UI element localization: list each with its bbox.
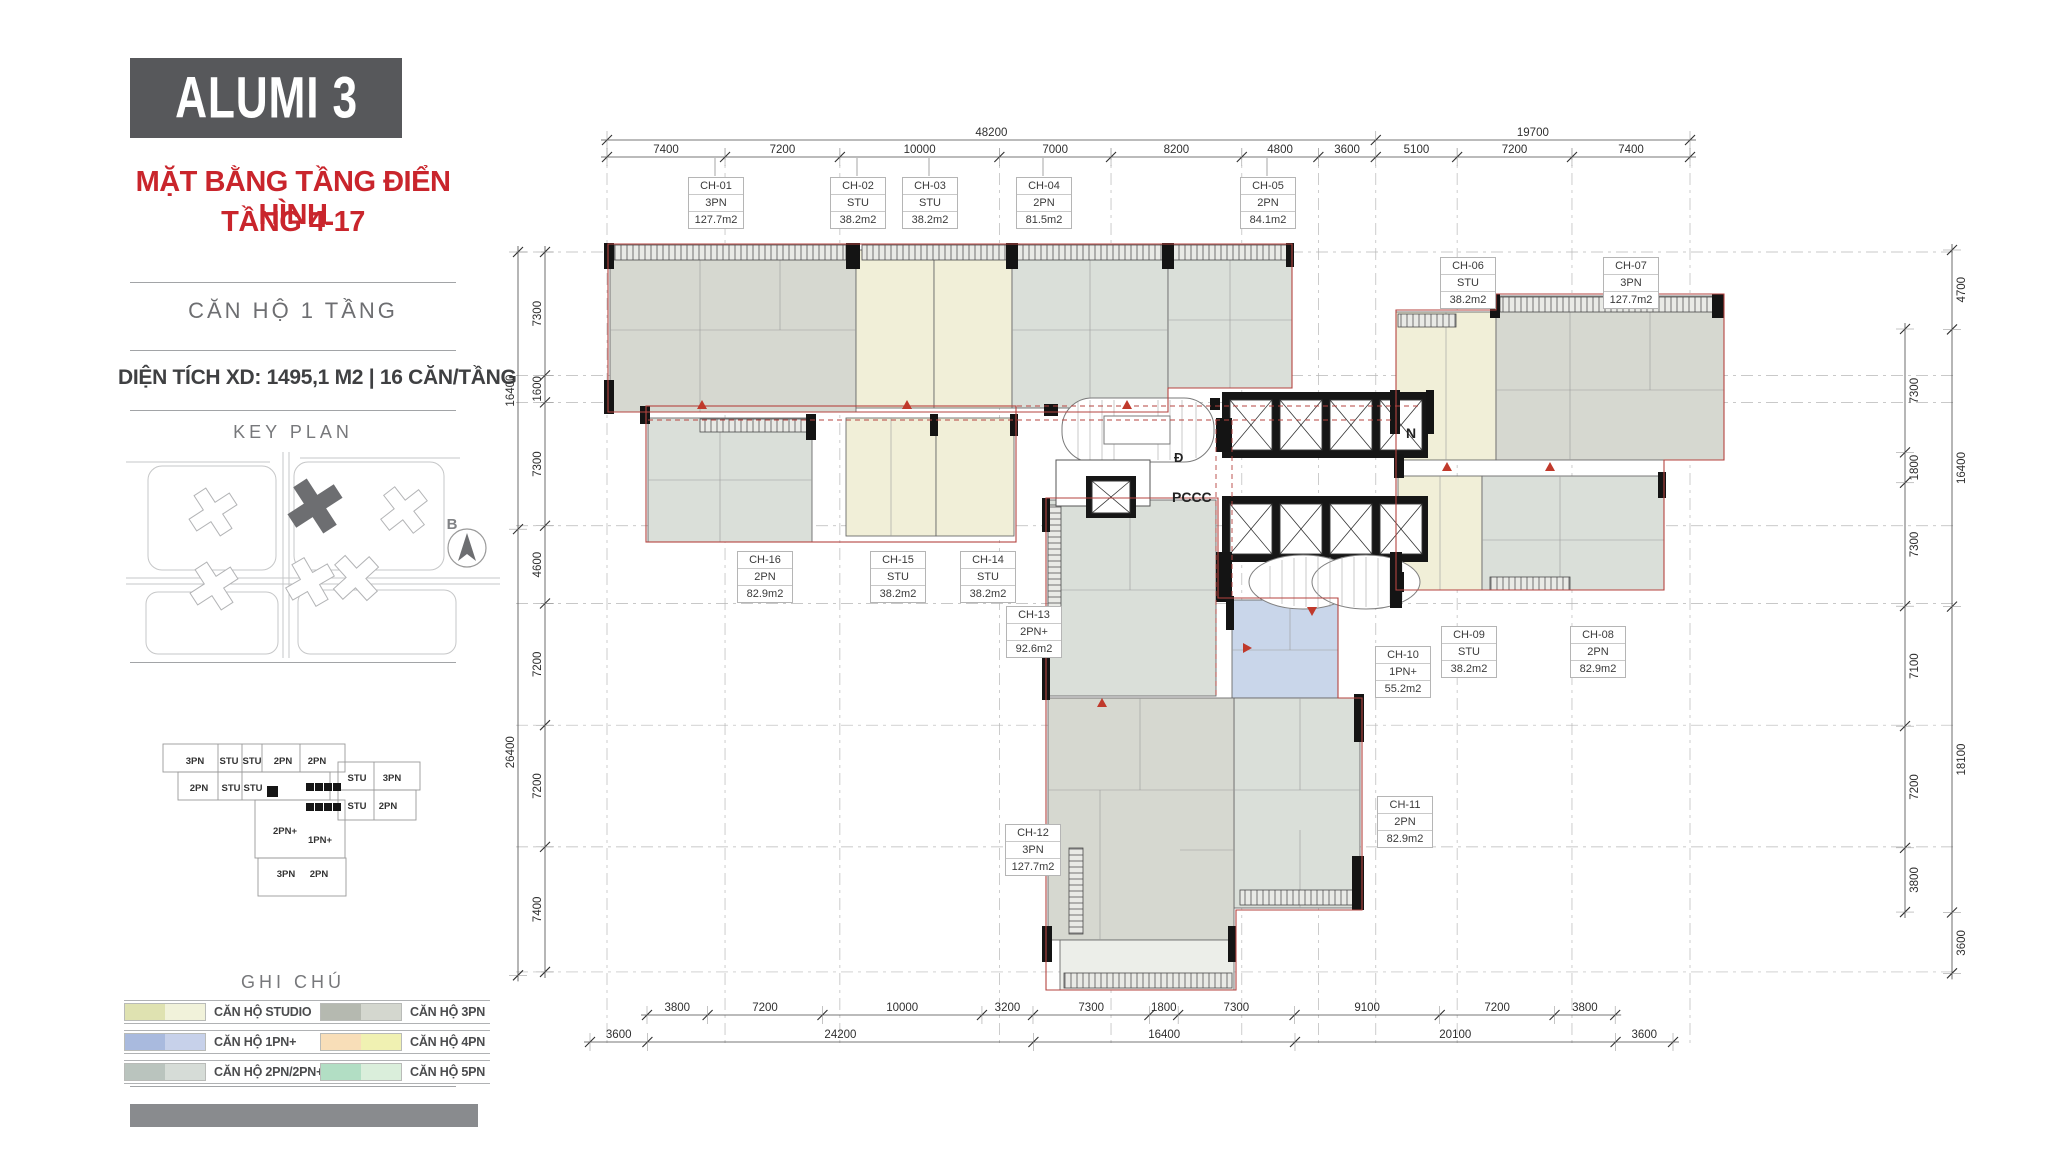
dim-label: 3200 <box>995 1002 1021 1014</box>
unit-label-ch-07: CH-073PN127.7m2 <box>1603 257 1659 309</box>
dim-label: 3800 <box>1909 867 1921 893</box>
unit-area: 82.9m2 <box>1378 830 1432 847</box>
unit-type: 1PN+ <box>1376 663 1430 680</box>
unit-label-ch-14: CH-14STU38.2m2 <box>960 551 1016 603</box>
unit-label-ch-11: CH-112PN82.9m2 <box>1377 796 1433 848</box>
dim-label: 4800 <box>1267 144 1293 156</box>
dim-label: 7100 <box>1909 653 1921 679</box>
unit-label-ch-12: CH-123PN127.7m2 <box>1005 824 1061 876</box>
unit-type: 3PN <box>1006 841 1060 858</box>
unit-type: 2PN <box>1017 194 1071 211</box>
dim-label: 7200 <box>1484 1002 1510 1014</box>
unit-area: 127.7m2 <box>689 211 743 228</box>
dim-label: 7400 <box>653 144 679 156</box>
dim-label: 3600 <box>1631 1029 1657 1041</box>
unit-id: CH-11 <box>1378 797 1432 813</box>
dim-right-outer: 470016400181003600 <box>1943 244 1968 979</box>
unit-type: 3PN <box>1604 274 1658 291</box>
dim-label: 7200 <box>1502 144 1528 156</box>
dim-bottom-segments: 3800720010000320073001800730091007200380… <box>641 1002 1621 1024</box>
unit-type: 2PN <box>738 568 792 585</box>
dim-label: 7000 <box>1042 144 1068 156</box>
unit-type: 2PN <box>1241 194 1295 211</box>
dim-label: 7300 <box>1909 378 1921 404</box>
unit-type: 3PN <box>689 194 743 211</box>
dim-top-overall: 4820019700 <box>601 127 1696 149</box>
dim-label: 3600 <box>1956 930 1968 956</box>
dim-left-outer: 1640026400 <box>505 246 527 981</box>
dim-label: 7200 <box>752 1002 778 1014</box>
unit-label-ch-03: CH-03STU38.2m2 <box>902 177 958 229</box>
unit-type: STU <box>1442 643 1496 660</box>
dim-label: 16400 <box>1956 452 1968 484</box>
unit-id: CH-05 <box>1241 178 1295 194</box>
unit-label-ch-10: CH-101PN+55.2m2 <box>1375 646 1431 698</box>
unit-type: STU <box>831 194 885 211</box>
unit-area: 38.2m2 <box>961 585 1015 602</box>
dim-label: 3600 <box>606 1029 632 1041</box>
dim-label: 7200 <box>1909 774 1921 800</box>
apartment-blocks <box>610 250 1724 990</box>
unit-id: CH-12 <box>1006 825 1060 841</box>
unit-area: 127.7m2 <box>1604 291 1658 308</box>
unit-area-ch-08 <box>1482 476 1664 590</box>
unit-area-ch-02 <box>856 250 934 408</box>
dim-label: 1800 <box>1151 1002 1177 1014</box>
dim-label: 20100 <box>1439 1029 1471 1041</box>
dim-label: 3800 <box>1572 1002 1598 1014</box>
unit-label-ch-04: CH-042PN81.5m2 <box>1016 177 1072 229</box>
dim-label: 7200 <box>770 144 796 156</box>
unit-area: 38.2m2 <box>871 585 925 602</box>
dim-label: 1600 <box>532 376 544 402</box>
unit-label-ch-09: CH-09STU38.2m2 <box>1441 626 1497 678</box>
dim-label: 7300 <box>1078 1002 1104 1014</box>
unit-label-ch-16: CH-162PN82.9m2 <box>737 551 793 603</box>
unit-label-ch-13: CH-132PN+92.6m2 <box>1006 606 1062 658</box>
unit-id: CH-04 <box>1017 178 1071 194</box>
unit-label-ch-08: CH-082PN82.9m2 <box>1570 626 1626 678</box>
unit-id: CH-03 <box>903 178 957 194</box>
page: ALUMI 3 MẶT BẰNG TẦNG ĐIỂN HÌNH TẦNG 4-1… <box>0 0 2048 1152</box>
unit-type: 2PN <box>1378 813 1432 830</box>
dim-label: 7300 <box>1909 532 1921 558</box>
unit-area: 82.9m2 <box>1571 660 1625 677</box>
unit-area: 38.2m2 <box>831 211 885 228</box>
dim-label: 24200 <box>824 1029 856 1041</box>
unit-id: CH-07 <box>1604 258 1658 274</box>
unit-type: STU <box>1441 274 1495 291</box>
unit-area-ch-13 <box>1048 500 1216 696</box>
d-label: Đ <box>1174 450 1183 465</box>
pccc-label: PCCC <box>1172 489 1212 505</box>
unit-id: CH-08 <box>1571 627 1625 643</box>
dim-label: 7300 <box>532 451 544 477</box>
unit-area: 81.5m2 <box>1017 211 1071 228</box>
unit-id: CH-15 <box>871 552 925 568</box>
unit-area-ch-07 <box>1496 296 1724 460</box>
unit-type: 2PN <box>1571 643 1625 660</box>
dim-label: 10000 <box>904 144 936 156</box>
unit-id: CH-14 <box>961 552 1015 568</box>
unit-id: CH-02 <box>831 178 885 194</box>
dim-label: 4700 <box>1956 277 1968 303</box>
unit-label-ch-05: CH-052PN84.1m2 <box>1240 177 1296 229</box>
dim-label: 3600 <box>1334 144 1360 156</box>
dim-label: 16400 <box>505 375 517 407</box>
unit-area: 38.2m2 <box>903 211 957 228</box>
dim-label: 9100 <box>1354 1002 1380 1014</box>
unit-area: 92.6m2 <box>1007 640 1061 657</box>
unit-area-ch-01 <box>610 250 856 412</box>
unit-id: CH-13 <box>1007 607 1061 623</box>
unit-area-ch-14 <box>936 418 1014 536</box>
dim-label: 7200 <box>532 773 544 799</box>
unit-id: CH-10 <box>1376 647 1430 663</box>
unit-type: STU <box>961 568 1015 585</box>
dim-left-inner: 7300160073004600720072007400 <box>532 246 554 978</box>
floor-plan-svg: 4820019700740072001000070008200480036005… <box>0 0 2048 1152</box>
unit-area: 38.2m2 <box>1441 291 1495 308</box>
unit-area-ch-03 <box>934 250 1012 408</box>
unit-label-ch-02: CH-02STU38.2m2 <box>830 177 886 229</box>
unit-area: 84.1m2 <box>1241 211 1295 228</box>
unit-label-ch-06: CH-06STU38.2m2 <box>1440 257 1496 309</box>
unit-type: STU <box>903 194 957 211</box>
dim-label: 7400 <box>1618 144 1644 156</box>
dim-bottom-overall: 36002420016400201003600 <box>584 1029 1679 1051</box>
dim-label: 48200 <box>975 127 1007 139</box>
unit-id: CH-16 <box>738 552 792 568</box>
unit-type: STU <box>871 568 925 585</box>
unit-label-ch-15: CH-15STU38.2m2 <box>870 551 926 603</box>
dim-label: 7200 <box>532 652 544 678</box>
label-leaders <box>715 158 1267 176</box>
dim-label: 7300 <box>1224 1002 1250 1014</box>
dim-right-inner: 730018007300710072003800 <box>1896 323 1921 918</box>
dim-label: 19700 <box>1517 127 1549 139</box>
dim-label: 26400 <box>505 736 517 768</box>
unit-id: CH-09 <box>1442 627 1496 643</box>
unit-area: 127.7m2 <box>1006 858 1060 875</box>
unit-type: 2PN+ <box>1007 623 1061 640</box>
dim-label: 8200 <box>1164 144 1190 156</box>
unit-area: 55.2m2 <box>1376 680 1430 697</box>
dim-label: 4600 <box>532 552 544 578</box>
dim-label: 7300 <box>532 301 544 327</box>
unit-area: 38.2m2 <box>1442 660 1496 677</box>
unit-id: CH-01 <box>689 178 743 194</box>
n-label: N <box>1406 425 1416 441</box>
dim-label: 7400 <box>532 897 544 923</box>
dim-label: 5100 <box>1404 144 1430 156</box>
dim-label: 3800 <box>665 1002 691 1014</box>
dim-label: 18100 <box>1956 744 1968 776</box>
unit-area-ch-11 <box>1234 698 1360 908</box>
dim-label: 10000 <box>886 1002 918 1014</box>
unit-area: 82.9m2 <box>738 585 792 602</box>
unit-label-ch-01: CH-013PN127.7m2 <box>688 177 744 229</box>
dim-label: 16400 <box>1148 1029 1180 1041</box>
unit-id: CH-06 <box>1441 258 1495 274</box>
dim-top-segments: 7400720010000700082004800360051007200740… <box>601 144 1696 166</box>
dim-label: 1800 <box>1909 455 1921 481</box>
